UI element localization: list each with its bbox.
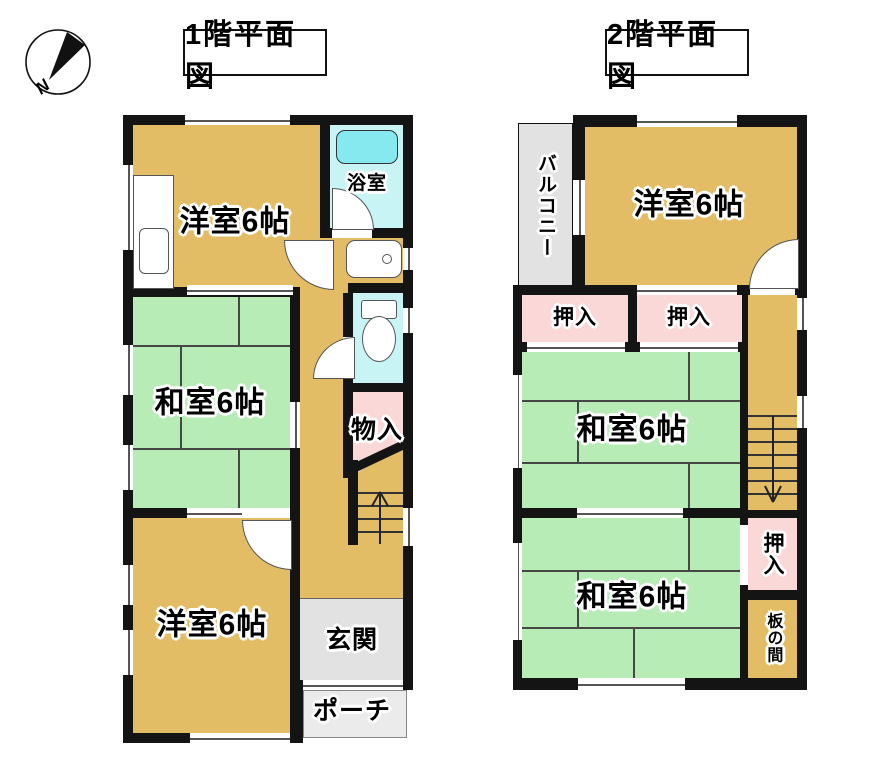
room-label-japanese-1f: 和室6帖 — [155, 387, 266, 419]
room-label-entrance: 玄関 — [326, 627, 378, 653]
washbasin — [346, 240, 402, 278]
door-gap — [242, 508, 290, 518]
sliding-door — [577, 508, 683, 518]
kitchen-sink — [139, 228, 169, 274]
bathtub — [336, 130, 398, 164]
stairs-up-arrow — [368, 488, 392, 546]
window — [797, 298, 807, 330]
window — [403, 248, 413, 270]
sliding-door — [290, 402, 300, 448]
balcony-door — [573, 180, 585, 235]
window — [403, 508, 413, 546]
tatami-line — [688, 352, 690, 400]
room-label-japanese-bottom-2f: 和室6帖 — [577, 581, 688, 613]
tatami-line — [238, 297, 240, 345]
wall — [348, 283, 403, 293]
washbasin-faucet — [382, 254, 392, 264]
tatami-line — [688, 462, 690, 508]
stairs-down-arrow — [762, 412, 784, 507]
window — [123, 445, 133, 490]
toilet-bowl — [362, 316, 396, 362]
room-label-japanese-middle-2f: 和室6帖 — [577, 414, 688, 446]
compass-icon: N — [23, 26, 95, 100]
room-label-closet-right: 押入 — [667, 307, 711, 329]
window — [123, 630, 133, 675]
closet-sliding-door — [640, 342, 738, 352]
sliding-door — [187, 508, 242, 518]
window — [123, 345, 133, 395]
tatami-line — [133, 345, 290, 347]
window — [513, 375, 522, 468]
room-label-bathroom: 浴室 — [347, 174, 387, 194]
window — [123, 565, 133, 605]
window — [513, 543, 522, 640]
tatami-line — [522, 462, 740, 464]
tatami-line — [633, 627, 635, 678]
room-label-western-2f: 洋室6帖 — [634, 189, 745, 221]
window — [403, 308, 413, 333]
wall — [343, 383, 403, 392]
window — [797, 396, 807, 428]
floor2-title: 2階平面図 — [605, 29, 749, 76]
room-label-storage-1f: 物入 — [351, 417, 403, 443]
tatami-line — [522, 627, 740, 629]
room-label-western-bottom-1f: 洋室6帖 — [157, 609, 268, 641]
sliding-door — [637, 285, 737, 295]
entrance-edge-line — [300, 598, 403, 599]
window — [578, 678, 685, 690]
sliding-door — [187, 285, 293, 295]
closet-sliding-door — [527, 342, 625, 352]
entrance-door — [303, 680, 403, 690]
tatami-line — [133, 448, 290, 450]
room-label-closet-left: 押入 — [553, 307, 597, 329]
closet-door-gap — [740, 525, 748, 585]
tatami-line — [522, 400, 740, 402]
floor1-title: 1階平面図 — [183, 29, 327, 76]
room-label-wood-floor: 板の間 — [764, 613, 781, 664]
room-label-western-top-1f: 洋室6帖 — [180, 206, 291, 238]
floor-plan-canvas: N 1階平面図 2階平面図 — [0, 0, 870, 757]
window — [637, 115, 737, 127]
room-label-closet-lower: 押入 — [761, 532, 783, 576]
window — [190, 733, 290, 743]
window — [123, 165, 133, 250]
tatami-line — [238, 448, 240, 508]
room-label-balcony: バルコニー — [535, 154, 555, 259]
tatami-line — [688, 518, 690, 570]
wall — [348, 460, 358, 545]
tatami-line — [522, 570, 740, 572]
window — [185, 115, 290, 125]
room-label-porch: ポーチ — [313, 698, 391, 724]
